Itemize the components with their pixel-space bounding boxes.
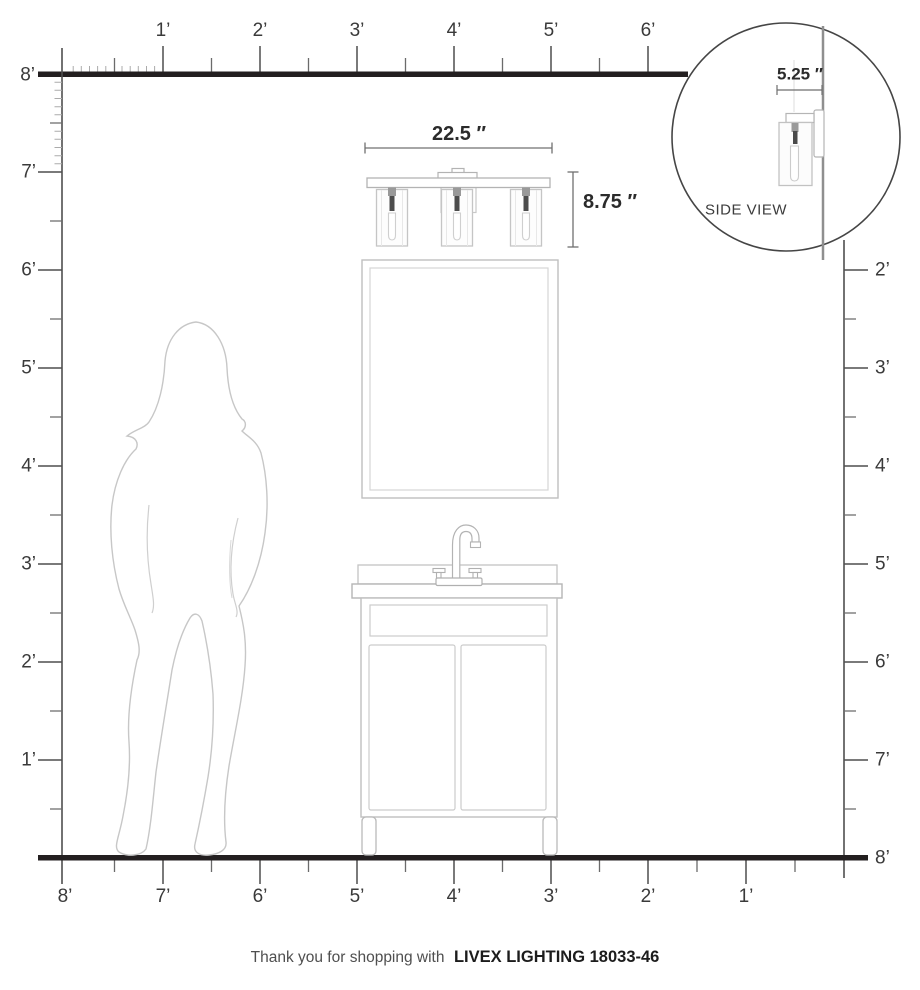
right-ruler-bottom-label: 8’ [875, 849, 890, 868]
left-ruler-label-3: 3’ [21, 555, 36, 574]
mirror [362, 260, 558, 498]
lamp-center [442, 188, 473, 247]
side-view-label: SIDE VIEW [705, 202, 787, 219]
top-ruler-label-1: 1’ [156, 21, 171, 40]
right-ruler [844, 240, 868, 878]
left-ruler-label-6: 6’ [21, 261, 36, 280]
bottom-ruler-label-4: 4’ [447, 887, 462, 906]
right-ruler-label-4: 4’ [875, 457, 890, 476]
right-ruler-label-3: 3’ [875, 359, 890, 378]
left-ruler-label-1: 1’ [21, 751, 36, 770]
top-ruler-label-4: 4’ [447, 21, 462, 40]
bottom-ruler-label-8: 8’ [58, 887, 73, 906]
caption-brand-model: LIVEX LIGHTING 18033-46 [454, 948, 659, 966]
dimension-diagram: 8’ 1’ 2’ 3’ 4’ 5’ 6’ 7’ 6’ 5’ 4’ 3’ 2’ 1… [0, 0, 920, 990]
left-ruler-label-2: 2’ [21, 653, 36, 672]
left-ruler-label-7: 7’ [21, 163, 36, 182]
top-ruler-label-6: 6’ [641, 21, 656, 40]
top-ruler-label-2: 2’ [253, 21, 268, 40]
top-ruler-label-5: 5’ [544, 21, 559, 40]
right-ruler-label-6: 6’ [875, 653, 890, 672]
top-ruler-origin-label: 8’ [20, 66, 35, 85]
lamp-left [377, 188, 408, 247]
bottom-ruler-label-2: 2’ [641, 887, 656, 906]
caption-prefix: Thank you for shopping with [251, 949, 445, 966]
left-ruler-label-5: 5’ [21, 359, 36, 378]
diagram-linework [0, 0, 920, 990]
bottom-ruler-label-6: 6’ [253, 887, 268, 906]
height-dimension-line [568, 172, 579, 247]
width-dimension-label: 22.5 ″ [432, 124, 486, 144]
left-ruler [38, 48, 62, 884]
caption: Thank you for shopping with LIVEX LIGHTI… [0, 948, 910, 967]
lamp-right [511, 188, 542, 247]
person-silhouette-icon [111, 322, 267, 855]
top-ruler-label-3: 3’ [350, 21, 365, 40]
right-ruler-label-7: 7’ [875, 751, 890, 770]
bottom-ruler-label-5: 5’ [350, 887, 365, 906]
left-ruler-label-4: 4’ [21, 457, 36, 476]
faucet [433, 525, 482, 586]
side-view-inset [672, 23, 900, 260]
bottom-ruler [38, 855, 868, 884]
depth-dimension-label: 5.25 ″ [777, 66, 823, 83]
bottom-ruler-label-7: 7’ [156, 887, 171, 906]
bottom-ruler-label-1: 1’ [739, 887, 754, 906]
top-ruler [38, 46, 688, 77]
bottom-ruler-label-3: 3’ [544, 887, 559, 906]
vanity-cabinet [352, 565, 562, 855]
right-ruler-label-2: 2’ [875, 261, 890, 280]
right-ruler-label-5: 5’ [875, 555, 890, 574]
vanity-light-front [367, 169, 550, 247]
height-dimension-label: 8.75 ″ [583, 192, 637, 212]
